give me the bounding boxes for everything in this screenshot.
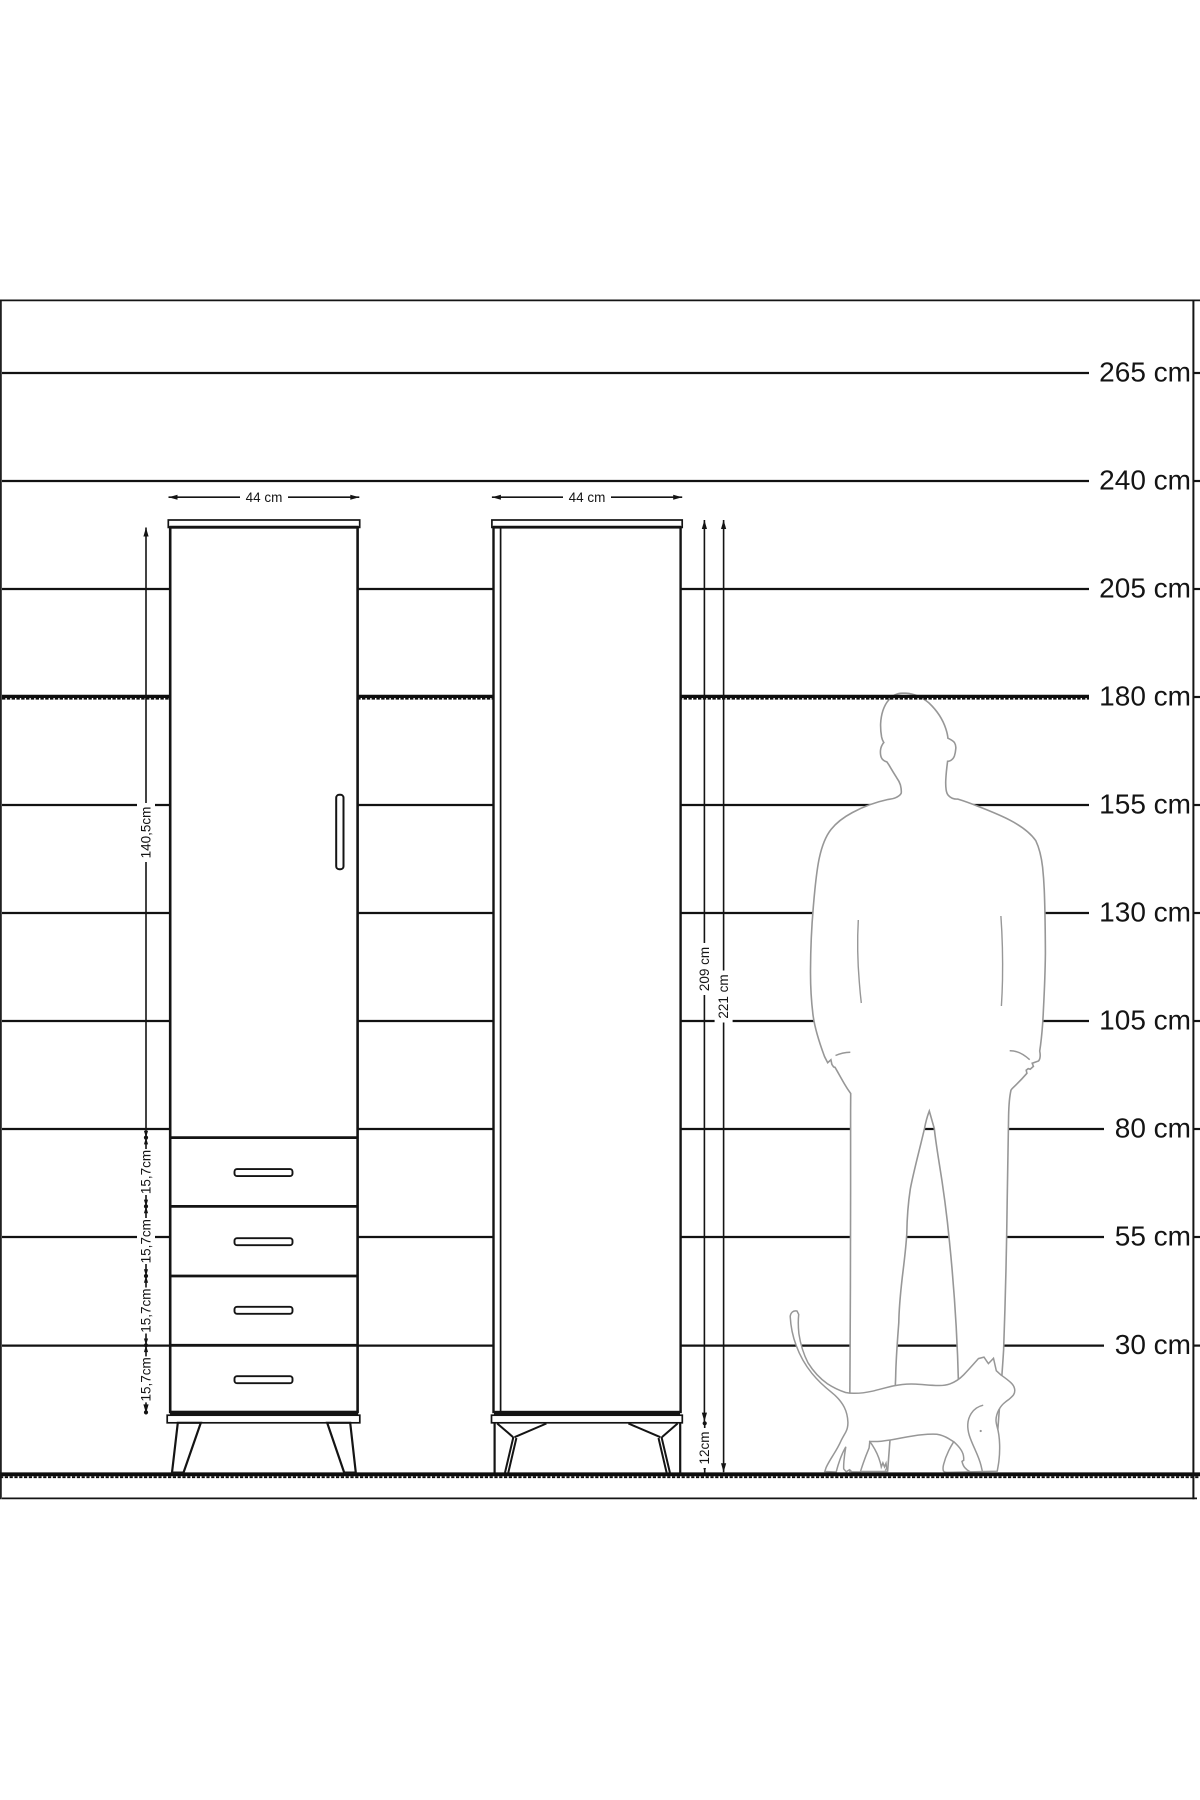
svg-text:180 cm: 180 cm (1099, 681, 1191, 712)
svg-text:130 cm: 130 cm (1099, 897, 1191, 928)
svg-text:12cm: 12cm (697, 1431, 712, 1464)
svg-text:80 cm: 80 cm (1115, 1113, 1191, 1144)
svg-text:155 cm: 155 cm (1099, 789, 1191, 820)
svg-text:44 cm: 44 cm (569, 490, 606, 505)
svg-text:15,7cm: 15,7cm (139, 1357, 154, 1401)
svg-text:209 cm: 209 cm (697, 947, 712, 991)
svg-text:105 cm: 105 cm (1099, 1005, 1191, 1036)
svg-text:44 cm: 44 cm (246, 490, 283, 505)
svg-text:30 cm: 30 cm (1115, 1329, 1191, 1360)
svg-text:15,7cm: 15,7cm (139, 1150, 154, 1194)
svg-text:240 cm: 240 cm (1099, 465, 1191, 496)
svg-text:205 cm: 205 cm (1099, 573, 1191, 604)
svg-text:15,7cm: 15,7cm (139, 1219, 154, 1263)
svg-text:221 cm: 221 cm (716, 974, 731, 1018)
svg-text:140,5cm: 140,5cm (139, 807, 154, 859)
svg-text:55 cm: 55 cm (1115, 1221, 1191, 1252)
svg-text:265 cm: 265 cm (1099, 357, 1191, 388)
svg-text:15,7cm: 15,7cm (139, 1288, 154, 1332)
